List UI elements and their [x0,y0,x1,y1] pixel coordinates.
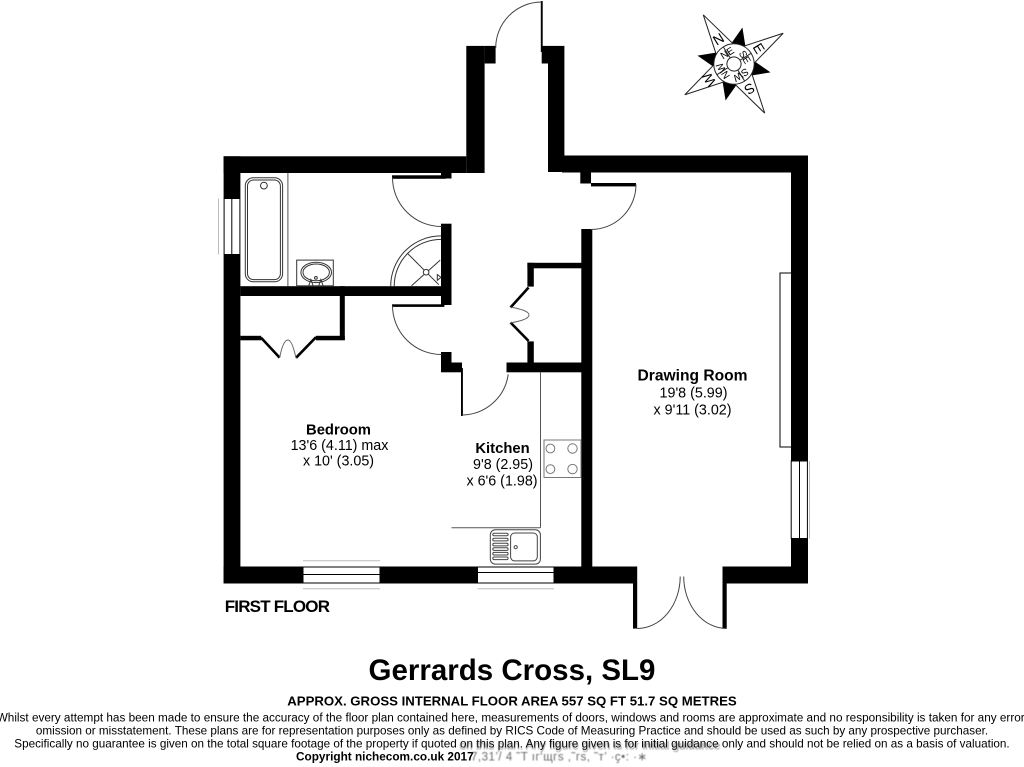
svg-text:x 10' (3.05): x 10' (3.05) [303,454,374,470]
svg-text:Copyright nichecom.co.uk 2017: Copyright nichecom.co.uk 2017 [296,750,474,764]
svg-text:omission or misstatement. Thes: omission or misstatement. These plans ar… [36,725,988,738]
svg-text:Whilst every attempt has been: Whilst every attempt has been made to en… [0,712,1024,725]
svg-text:on this plan. Any figure given: on this plan. Any figure given is for in… [459,739,720,753]
svg-text:7,31’/ 4 ˜T ıг‘щгѕ ,˜гѕ, ˜т: 7,31’/ 4 ˜T ıг‘щгѕ ,˜гѕ, ˜т’ ·ҫ•: ·∗ [471,752,648,764]
svg-text:FIRST FLOOR: FIRST FLOOR [225,597,330,616]
svg-text:Kitchen: Kitchen [475,441,529,457]
svg-text:Drawing Room: Drawing Room [637,368,747,385]
svg-text:9'8 (2.95): 9'8 (2.95) [473,457,533,473]
svg-text:Gerrards Cross, SL9: Gerrards Cross, SL9 [369,654,656,687]
svg-text:Bedroom: Bedroom [306,423,371,439]
svg-text:APPROX. GROSS INTERNAL FLOOR A: APPROX. GROSS INTERNAL FLOOR AREA 557 SQ… [287,694,737,709]
svg-text:19'8 (5.99): 19'8 (5.99) [660,386,728,402]
svg-text:13'6 (4.11) max: 13'6 (4.11) max [291,438,389,454]
svg-text:x 9'11 (3.02): x 9'11 (3.02) [654,403,732,419]
svg-text:x 6'6 (1.98): x 6'6 (1.98) [466,474,537,490]
